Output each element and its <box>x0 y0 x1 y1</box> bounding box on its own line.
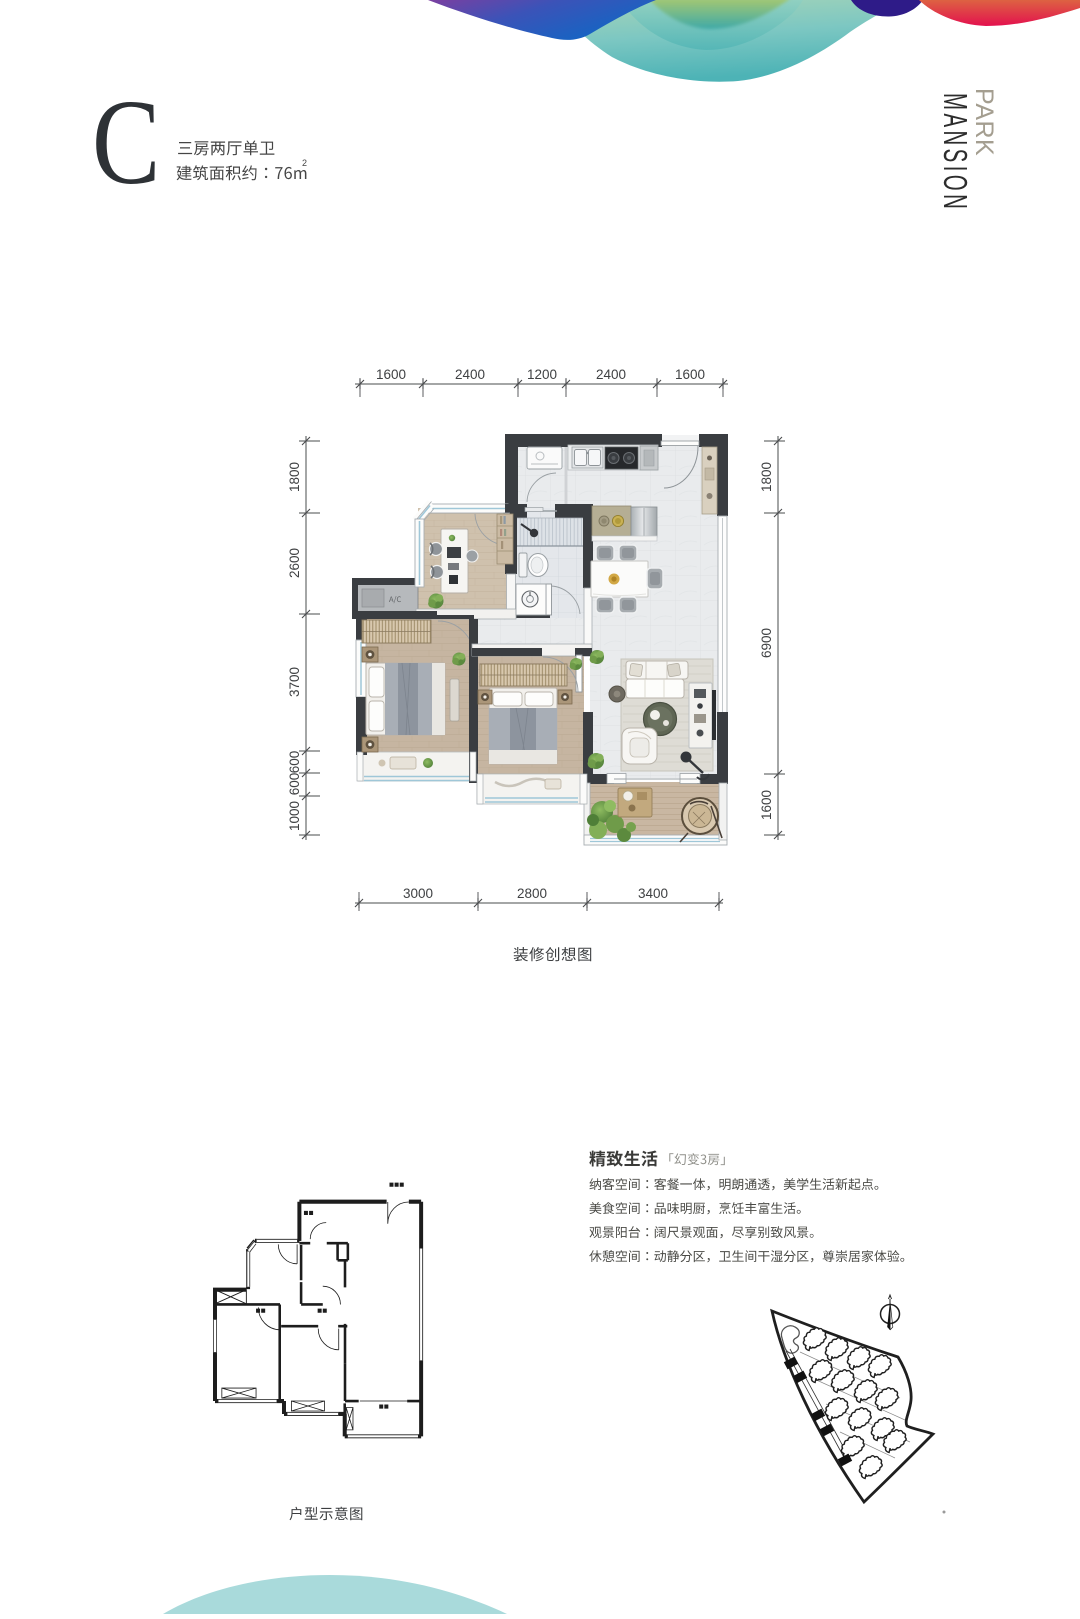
svg-text:1800: 1800 <box>287 462 302 492</box>
svg-text:3000: 3000 <box>403 886 433 901</box>
svg-text:600: 600 <box>287 751 302 774</box>
svg-text:1600: 1600 <box>376 367 406 382</box>
svg-text:2400: 2400 <box>455 367 485 382</box>
svg-text:MANSION: MANSION <box>937 93 974 212</box>
svg-text:1200: 1200 <box>527 367 557 382</box>
svg-text:2600: 2600 <box>287 548 302 578</box>
svg-text:1000: 1000 <box>287 801 302 831</box>
svg-text:3400: 3400 <box>638 886 668 901</box>
svg-text:C: C <box>92 76 160 210</box>
svg-text:2800: 2800 <box>517 886 547 901</box>
svg-text:2400: 2400 <box>596 367 626 382</box>
svg-text:600: 600 <box>287 773 302 796</box>
svg-text:3700: 3700 <box>287 667 302 697</box>
svg-text:1600: 1600 <box>675 367 705 382</box>
svg-text:6900: 6900 <box>759 628 774 658</box>
svg-text:1800: 1800 <box>759 462 774 492</box>
svg-text:2: 2 <box>302 158 307 168</box>
svg-text:1600: 1600 <box>759 790 774 820</box>
